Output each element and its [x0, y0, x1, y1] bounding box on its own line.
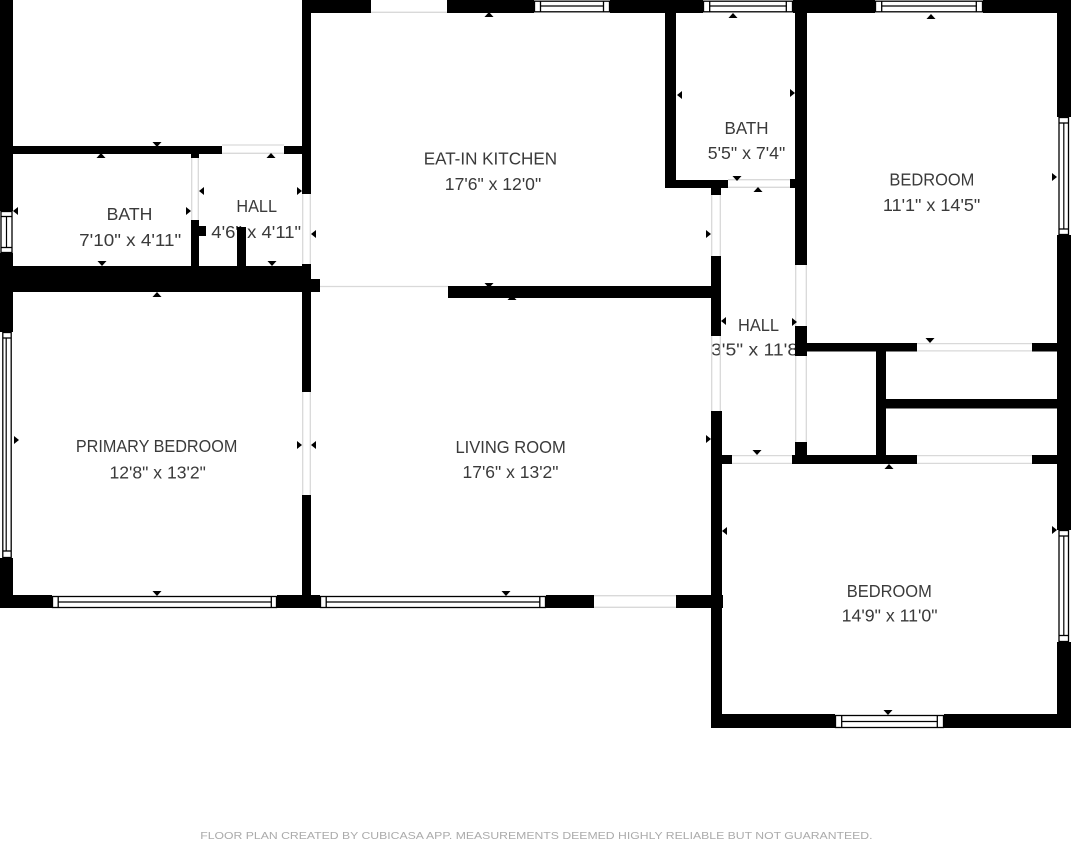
svg-text:17'6" x 13'2": 17'6" x 13'2": [463, 462, 559, 482]
svg-text:7'10" x 4'11": 7'10" x 4'11": [79, 230, 181, 250]
svg-text:BATH: BATH: [725, 118, 769, 138]
svg-text:BATH: BATH: [107, 204, 153, 224]
svg-text:FLOOR PLAN CREATED BY CUBICASA: FLOOR PLAN CREATED BY CUBICASA APP. MEAS…: [200, 830, 872, 842]
svg-text:HALL: HALL: [738, 315, 779, 335]
svg-text:14'9" x 11'0": 14'9" x 11'0": [842, 606, 938, 626]
svg-text:17'6" x 12'0": 17'6" x 12'0": [445, 174, 541, 194]
svg-text:BEDROOM: BEDROOM: [889, 170, 974, 190]
svg-text:HALL: HALL: [236, 196, 277, 216]
svg-text:5'5" x 7'4": 5'5" x 7'4": [708, 143, 786, 163]
svg-text:3'5" x 11'8": 3'5" x 11'8": [711, 339, 805, 359]
svg-text:12'8" x 13'2": 12'8" x 13'2": [110, 463, 206, 483]
svg-text:BEDROOM: BEDROOM: [847, 581, 932, 601]
svg-text:4'6" x 4'11": 4'6" x 4'11": [211, 222, 301, 242]
svg-text:11'1" x 14'5": 11'1" x 14'5": [883, 195, 980, 215]
svg-text:LIVING ROOM: LIVING ROOM: [455, 437, 565, 457]
svg-text:EAT-IN KITCHEN: EAT-IN KITCHEN: [424, 149, 557, 169]
svg-text:PRIMARY BEDROOM: PRIMARY BEDROOM: [76, 436, 238, 456]
